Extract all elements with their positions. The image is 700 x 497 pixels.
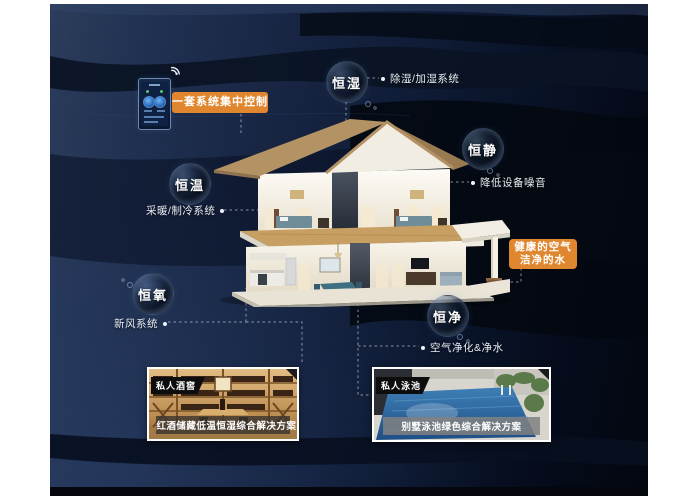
feature-bubble-purity: 恒净 xyxy=(427,295,469,337)
feature-bubble-humidity: 恒湿 xyxy=(326,61,368,103)
highlight-line2: 洁净的水 xyxy=(520,254,566,267)
device-dial xyxy=(154,96,166,108)
pool-photo: 私人泳池 别墅泳池绿色综合解决方案 xyxy=(374,369,549,440)
feature-label-quiet: 降低设备噪音 xyxy=(471,175,546,190)
corner-fold-icon xyxy=(286,369,297,380)
poster: 一套系统集中控制 恒湿 恒静 恒温 恒氧 恒净 除湿/加湿系统 降低设备噪音 采… xyxy=(0,0,700,497)
feature-bubble-oxygen: 恒氧 xyxy=(132,273,174,315)
connector-dot xyxy=(421,346,425,350)
connector-dot xyxy=(220,209,224,213)
solution-card-pool: 私人泳池 别墅泳池绿色综合解决方案 xyxy=(372,367,551,442)
highlight-line1: 健康的空气 xyxy=(514,241,572,254)
wine-cellar-photo: 私人酒窖 红酒储藏低温恒湿综合解决方案 xyxy=(149,369,297,439)
connector-dot xyxy=(381,77,385,81)
card-caption: 红酒储藏低温恒湿综合解决方案 xyxy=(156,416,289,434)
highlight-box: 健康的空气 洁净的水 xyxy=(509,239,577,269)
device-readout xyxy=(144,121,158,123)
feature-desc: 新风系统 xyxy=(114,316,158,331)
device-readout xyxy=(144,116,164,118)
feature-desc: 采暖/制冷系统 xyxy=(146,203,215,218)
solution-card-wine: 私人酒窖 红酒储藏低温恒湿综合解决方案 xyxy=(147,367,299,441)
device-screen xyxy=(141,82,168,126)
card-tag: 私人泳池 xyxy=(376,377,430,394)
device-readout xyxy=(157,110,165,112)
feature-bubble-temperature: 恒温 xyxy=(169,163,211,205)
feature-bubble-quiet: 恒静 xyxy=(462,128,504,170)
feature-label-oxygen: 新风系统 xyxy=(114,316,167,331)
feature-desc: 空气净化&净水 xyxy=(430,340,504,355)
card-caption: 别墅泳池绿色综合解决方案 xyxy=(383,417,541,435)
device-readout xyxy=(144,110,152,112)
wifi-icon xyxy=(168,62,184,78)
thermostat-device xyxy=(138,78,171,130)
card-tag: 私人酒窖 xyxy=(151,377,205,394)
device-led xyxy=(146,90,149,93)
feature-label-humidity: 除湿/加湿系统 xyxy=(381,71,459,86)
feature-label-purity: 空气净化&净水 xyxy=(421,340,504,355)
device-led xyxy=(160,90,163,93)
feature-desc: 降低设备噪音 xyxy=(480,175,546,190)
corner-fold-icon xyxy=(538,369,549,380)
connector-dot xyxy=(471,181,475,185)
connector-dot xyxy=(163,322,167,326)
device-title-bar xyxy=(149,84,160,86)
central-control-badge: 一套系统集中控制 xyxy=(172,92,268,113)
feature-desc: 除湿/加湿系统 xyxy=(390,71,459,86)
feature-label-temperature: 采暖/制冷系统 xyxy=(146,203,224,218)
poster-panel: 一套系统集中控制 恒湿 恒静 恒温 恒氧 恒净 除湿/加湿系统 降低设备噪音 采… xyxy=(50,4,648,496)
